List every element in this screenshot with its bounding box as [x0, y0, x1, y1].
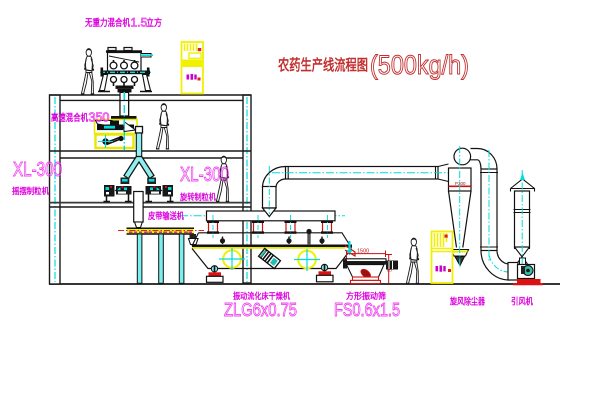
svg-text:1.5: 1.5: [131, 16, 148, 30]
svg-text:农药生产线流程图: 农药生产线流程图: [277, 56, 368, 74]
svg-text:旋转制粒机: 旋转制粒机: [179, 192, 216, 202]
svg-text:高速混合机: 高速混合机: [51, 112, 88, 124]
svg-text:P300: P300: [455, 181, 466, 186]
svg-text:旋风除尘器: 旋风除尘器: [449, 296, 486, 307]
svg-text:立方: 立方: [146, 17, 162, 29]
svg-text:350: 350: [89, 111, 110, 125]
svg-text:1500: 1500: [357, 249, 369, 255]
svg-text:无重力混合机: 无重力混合机: [84, 17, 130, 29]
svg-text:XL-300: XL-300: [180, 164, 229, 186]
svg-text:皮带输送机: 皮带输送机: [147, 210, 184, 221]
svg-text:(500kg/h): (500kg/h): [370, 50, 469, 80]
svg-text:XL-300: XL-300: [13, 159, 62, 181]
svg-text:引风机: 引风机: [511, 296, 533, 307]
svg-text:ZLG6x0.75: ZLG6x0.75: [224, 300, 297, 320]
svg-text:FS0.6x1.5: FS0.6x1.5: [334, 300, 400, 320]
svg-text:摇摆制粒机: 摇摆制粒机: [12, 186, 49, 196]
